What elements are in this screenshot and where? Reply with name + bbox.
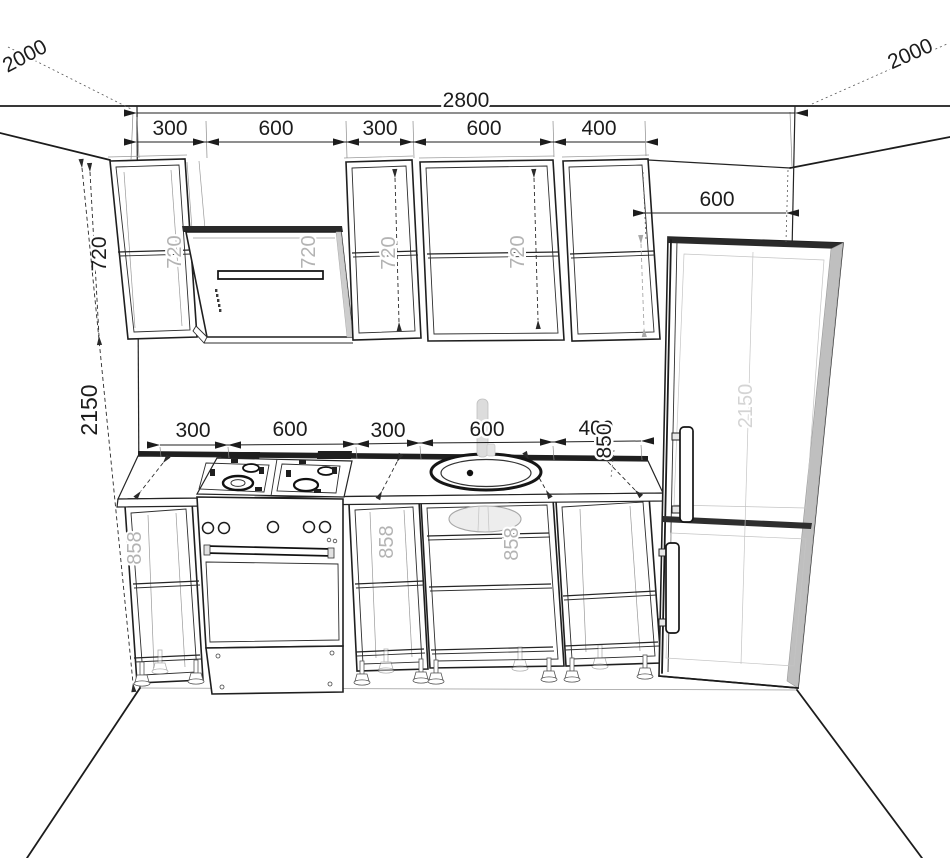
gas-range — [197, 451, 352, 694]
svg-text:858: 858 — [124, 531, 146, 564]
dimension-total-width: 2800 — [131, 89, 795, 166]
right-wall-top-edge — [790, 137, 950, 168]
hood-handle — [218, 271, 323, 279]
svg-text:720: 720 — [298, 235, 320, 268]
base-cabinet-300-left — [125, 502, 203, 683]
svg-text:720: 720 — [507, 235, 529, 268]
sink-base-cabinet-600 — [421, 499, 564, 668]
dimension-fridge-width: 600 — [643, 170, 788, 242]
left-wall-top-edge — [0, 133, 110, 160]
wall-cabinet-400 — [562, 155, 660, 341]
upper-width-4: 600 — [466, 117, 501, 140]
base-width-4: 600 — [469, 418, 504, 441]
svg-text:720: 720 — [164, 235, 186, 268]
upper-width-5: 400 — [581, 117, 616, 140]
cooker-hood — [182, 161, 353, 343]
svg-text:858: 858 — [501, 527, 523, 560]
floor-corner-left — [27, 688, 140, 858]
oven-drawer — [206, 646, 343, 694]
oven-front — [197, 497, 343, 648]
dimension-right-wall-depth: 2000 — [812, 34, 947, 104]
base-width-1: 300 — [175, 419, 210, 442]
wall-cabinet-600 — [419, 156, 564, 341]
fridge-height-label: 2150 — [735, 384, 757, 429]
sink-drain — [467, 470, 473, 476]
hood-panel — [186, 232, 353, 337]
dimension-upper-height: 720 — [88, 172, 111, 336]
wall-reference-line — [648, 160, 790, 168]
svg-text:858: 858 — [376, 525, 398, 558]
hood-top-cap — [182, 226, 343, 232]
worktop-height-label: 850 — [593, 423, 616, 458]
total-width-label: 2800 — [443, 89, 490, 112]
total-height-label: 2150 — [76, 384, 102, 435]
dimension-left-wall-depth: 2000 — [0, 35, 133, 110]
left-wall-depth-label: 2000 — [0, 35, 51, 77]
sink — [431, 399, 541, 490]
kitchen-elevation-drawing: 2150 — [0, 0, 950, 858]
base-cabinet-400 — [556, 496, 661, 666]
upper-width-1: 300 — [152, 117, 187, 140]
dimension-row-upper: 300 600 300 600 400 — [137, 117, 646, 158]
base-width-3: 300 — [370, 419, 405, 442]
svg-text:720: 720 — [378, 236, 400, 269]
right-wall-depth-label: 2000 — [884, 34, 936, 74]
refrigerator: 2150 — [659, 237, 843, 688]
upper-width-2: 600 — [258, 117, 293, 140]
upper-width-3: 300 — [362, 117, 397, 140]
fridge-width-label: 600 — [699, 188, 734, 211]
floor-corner-right — [797, 690, 922, 858]
base-width-2: 600 — [272, 418, 307, 441]
